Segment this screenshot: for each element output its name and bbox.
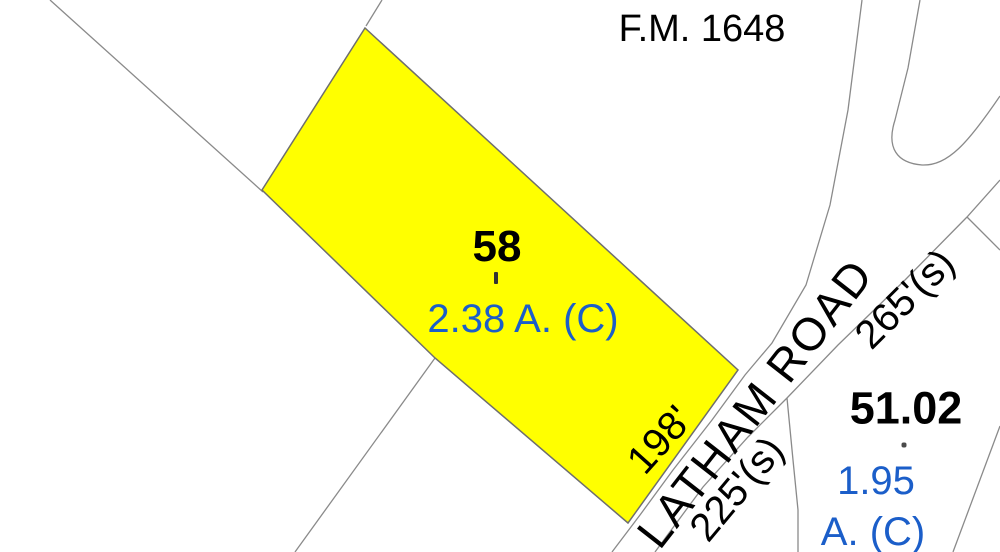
parcel-map: F.M. 1648 LATHAM ROAD 58 2.38 A. (C) 51.… xyxy=(0,0,1000,552)
parcel-58-centroid-tick xyxy=(494,272,498,284)
parcel-58-acreage-label: 2.38 A. (C) xyxy=(427,299,618,339)
boundary-line-east-branch xyxy=(967,217,1000,250)
boundary-line-southwest-branch xyxy=(295,358,435,552)
parcel-5102-id-label: 51.02 xyxy=(850,386,963,431)
latham-fm1648-corner-curve xyxy=(892,0,1000,165)
boundary-line-stub xyxy=(366,0,382,26)
parcel-5102-acreage-line2: A. (C) xyxy=(821,512,925,552)
boundary-line-northwest xyxy=(50,0,263,192)
parcel-58-id-label: 58 xyxy=(473,225,522,269)
boundary-line-southeast xyxy=(953,426,1000,552)
road-label-fm-1648: F.M. 1648 xyxy=(619,10,786,48)
parcel-5102-centroid-dot xyxy=(902,443,907,448)
parcel-5102-acreage-line1: 1.95 xyxy=(837,461,915,501)
parcel-5102-west-boundary xyxy=(787,398,798,552)
